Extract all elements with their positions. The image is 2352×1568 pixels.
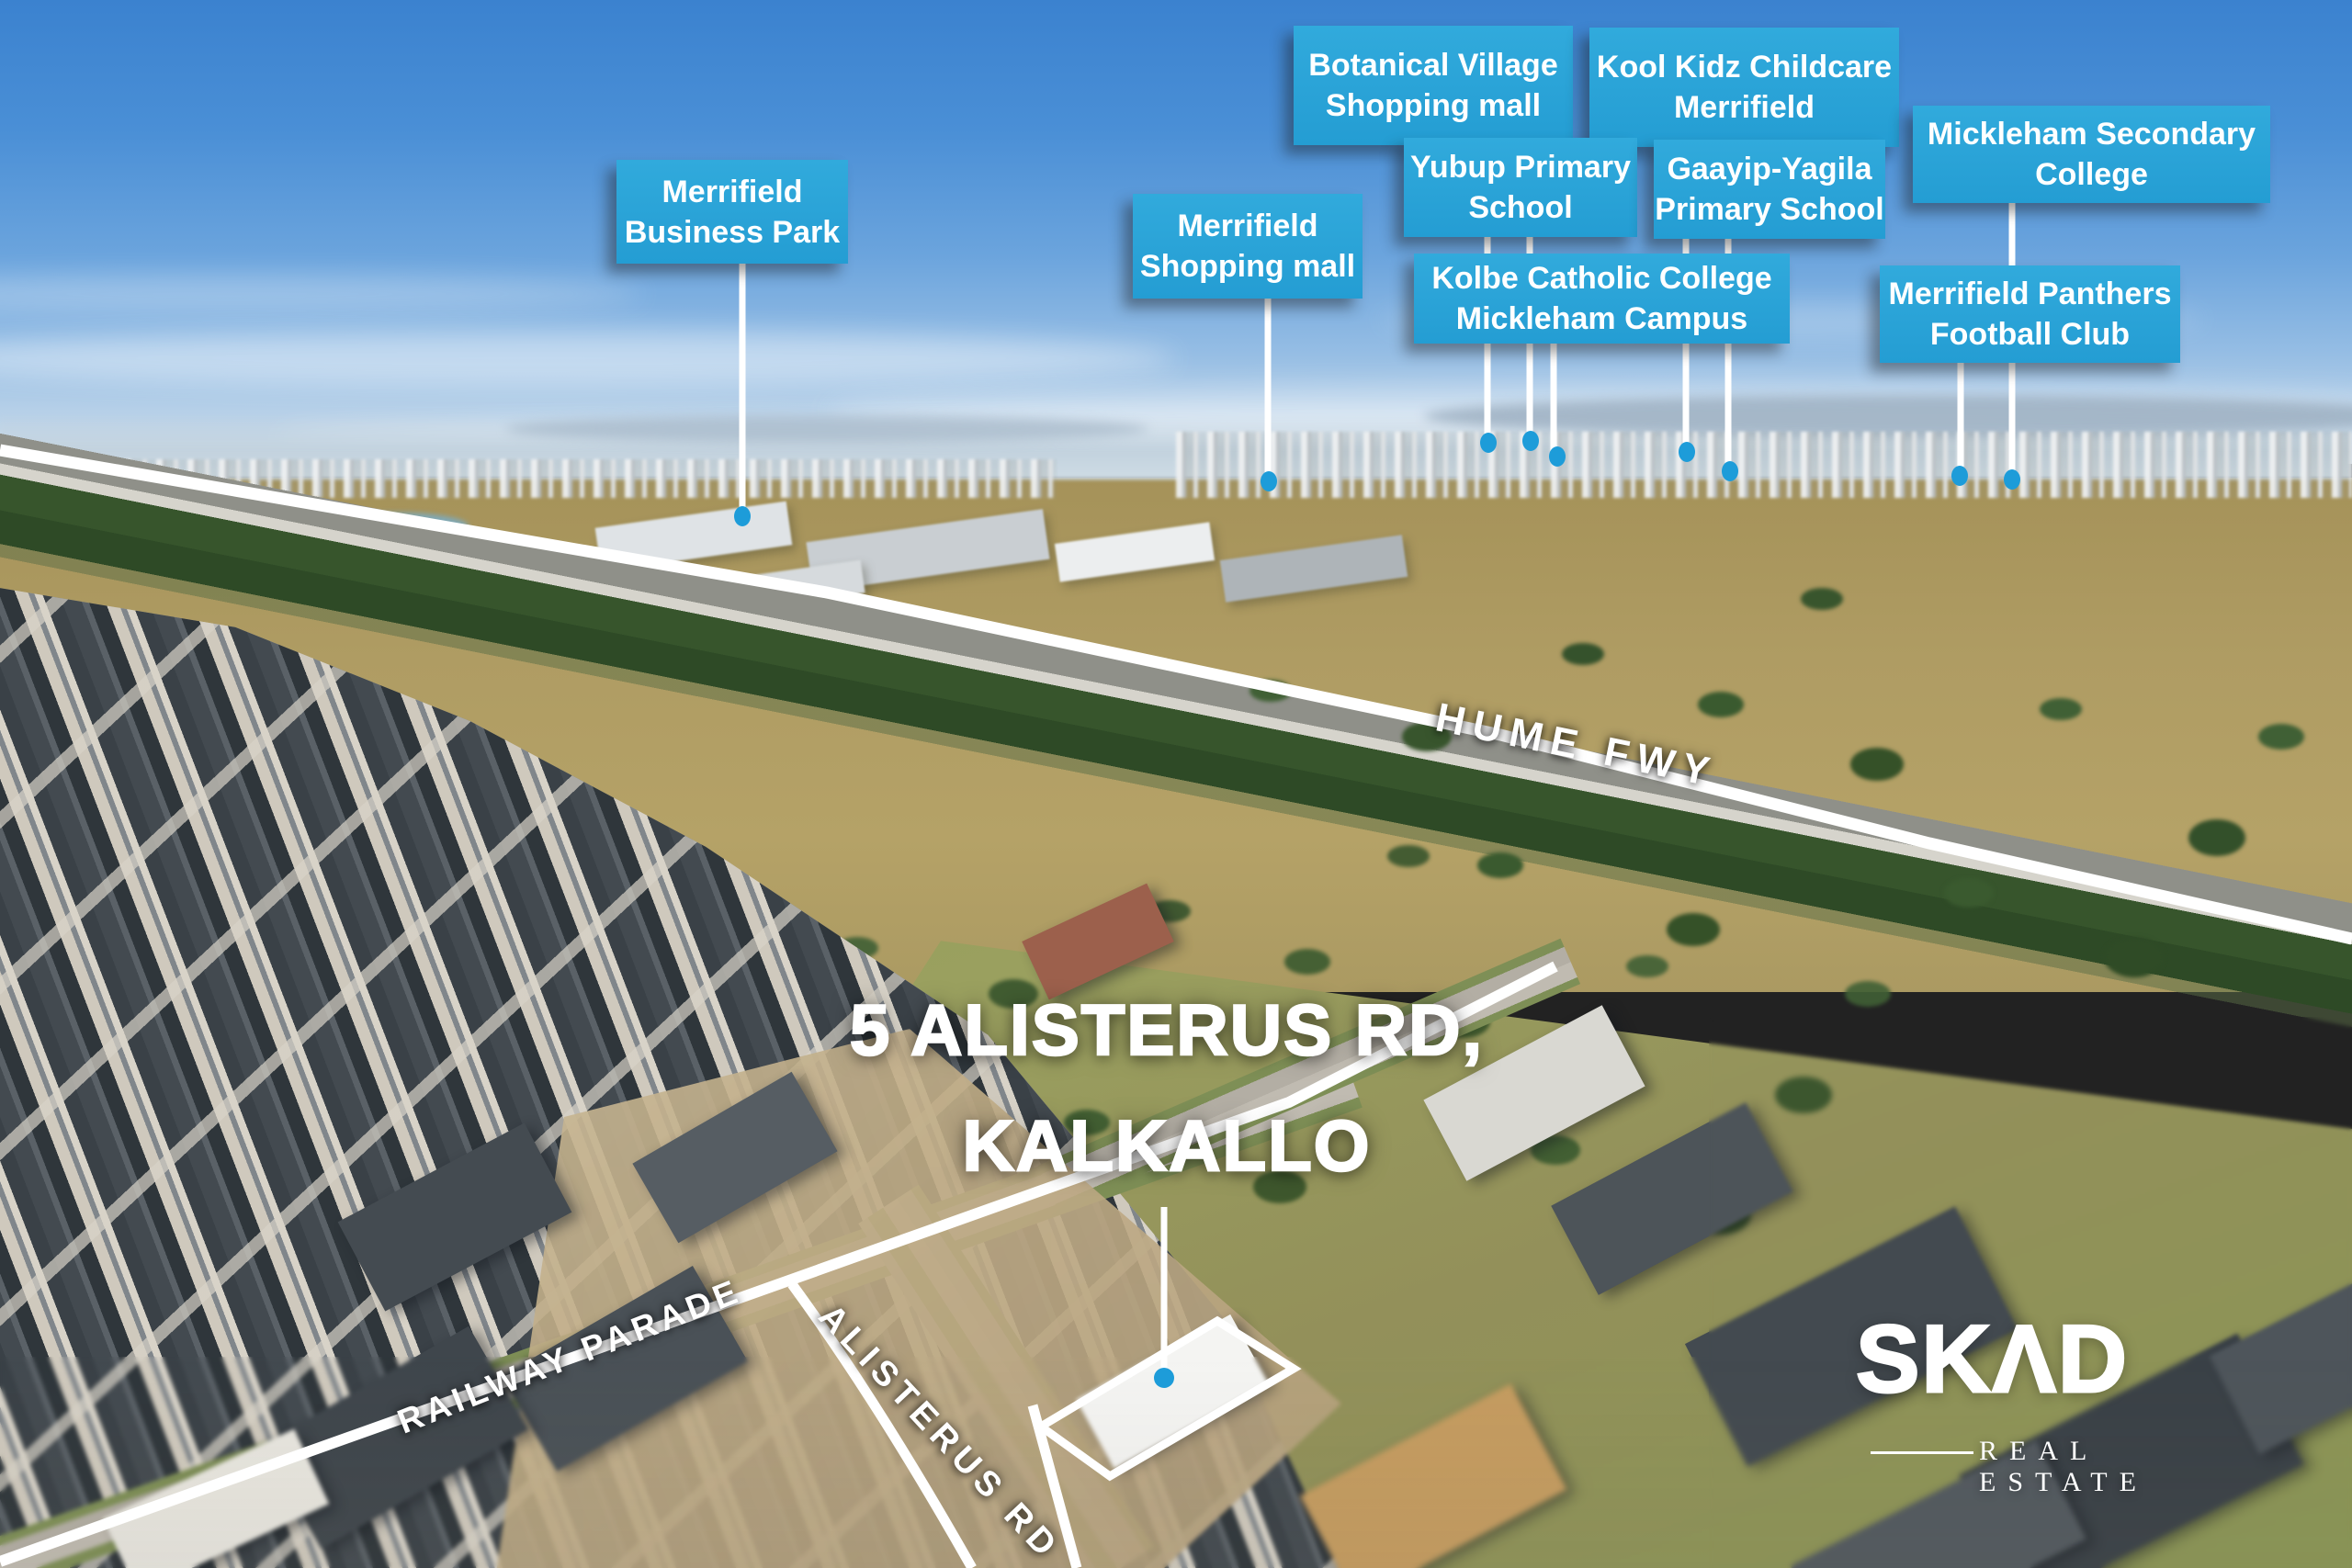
callout-merrifield-panthers-football-club: Merrifield PanthersFootball Club (1880, 265, 2180, 363)
callout-label: Merrifield PanthersFootball Club (1889, 274, 2172, 355)
callout-label: Mickleham SecondaryCollege (1928, 114, 2256, 195)
location-dot-icon (2004, 469, 2020, 490)
property-title: 5 ALISTERUS RD, KALKALLO (625, 987, 1709, 1188)
callout-label: MerrifieldShopping mall (1140, 206, 1355, 287)
property-title-line1: 5 ALISTERUS RD, (625, 987, 1709, 1072)
location-dot-icon (1261, 471, 1277, 491)
callout-label: Botanical VillageShopping mall (1308, 45, 1557, 126)
callout-merrifield-business-park: MerrifieldBusiness Park (616, 160, 848, 264)
location-dot-icon (1951, 466, 1968, 486)
property-title-line2: KALKALLO (625, 1103, 1709, 1188)
location-dot-icon (1679, 442, 1695, 462)
callout-label: Kool Kidz ChildcareMerrifield (1597, 47, 1892, 128)
callout-label: Yubup PrimarySchool (1410, 147, 1631, 228)
skad-logo: SKΛD REAL ESTATE (1856, 1309, 2242, 1410)
callout-gaayip-yagila-primary-school: Gaayip-YagilaPrimary School (1654, 140, 1885, 239)
property-dot-icon (1154, 1368, 1174, 1388)
skad-logo-wordmark: SKΛD (1856, 1309, 2242, 1410)
location-dot-icon (1522, 431, 1539, 451)
aerial-photo-scene: MerrifieldBusiness ParkBotanical Village… (0, 0, 2352, 1568)
callout-botanical-village-shopping-mall: Botanical VillageShopping mall (1294, 26, 1573, 145)
skad-logo-tagline: REAL ESTATE (1979, 1436, 2242, 1498)
callout-yubup-primary-school: Yubup PrimarySchool (1404, 138, 1637, 237)
callout-label: Kolbe Catholic CollegeMickleham Campus (1431, 258, 1771, 339)
callout-merrifield-shopping-mall: MerrifieldShopping mall (1133, 194, 1363, 299)
callout-label: MerrifieldBusiness Park (625, 172, 840, 253)
location-dot-icon (1480, 433, 1497, 453)
callout-kolbe-catholic-college-mickleham-campus: Kolbe Catholic CollegeMickleham Campus (1414, 254, 1790, 344)
hume-fwy-highlight (0, 450, 2352, 939)
location-dot-icon (1549, 446, 1566, 467)
skad-logo-rule (1871, 1451, 1973, 1454)
callout-kool-kidz-childcare-merrifield: Kool Kidz ChildcareMerrifield (1589, 28, 1899, 147)
callout-mickleham-secondary-college: Mickleham SecondaryCollege (1913, 106, 2270, 203)
location-dot-icon (1722, 461, 1738, 481)
callout-label: Gaayip-YagilaPrimary School (1655, 149, 1883, 230)
location-dot-icon (734, 506, 751, 526)
